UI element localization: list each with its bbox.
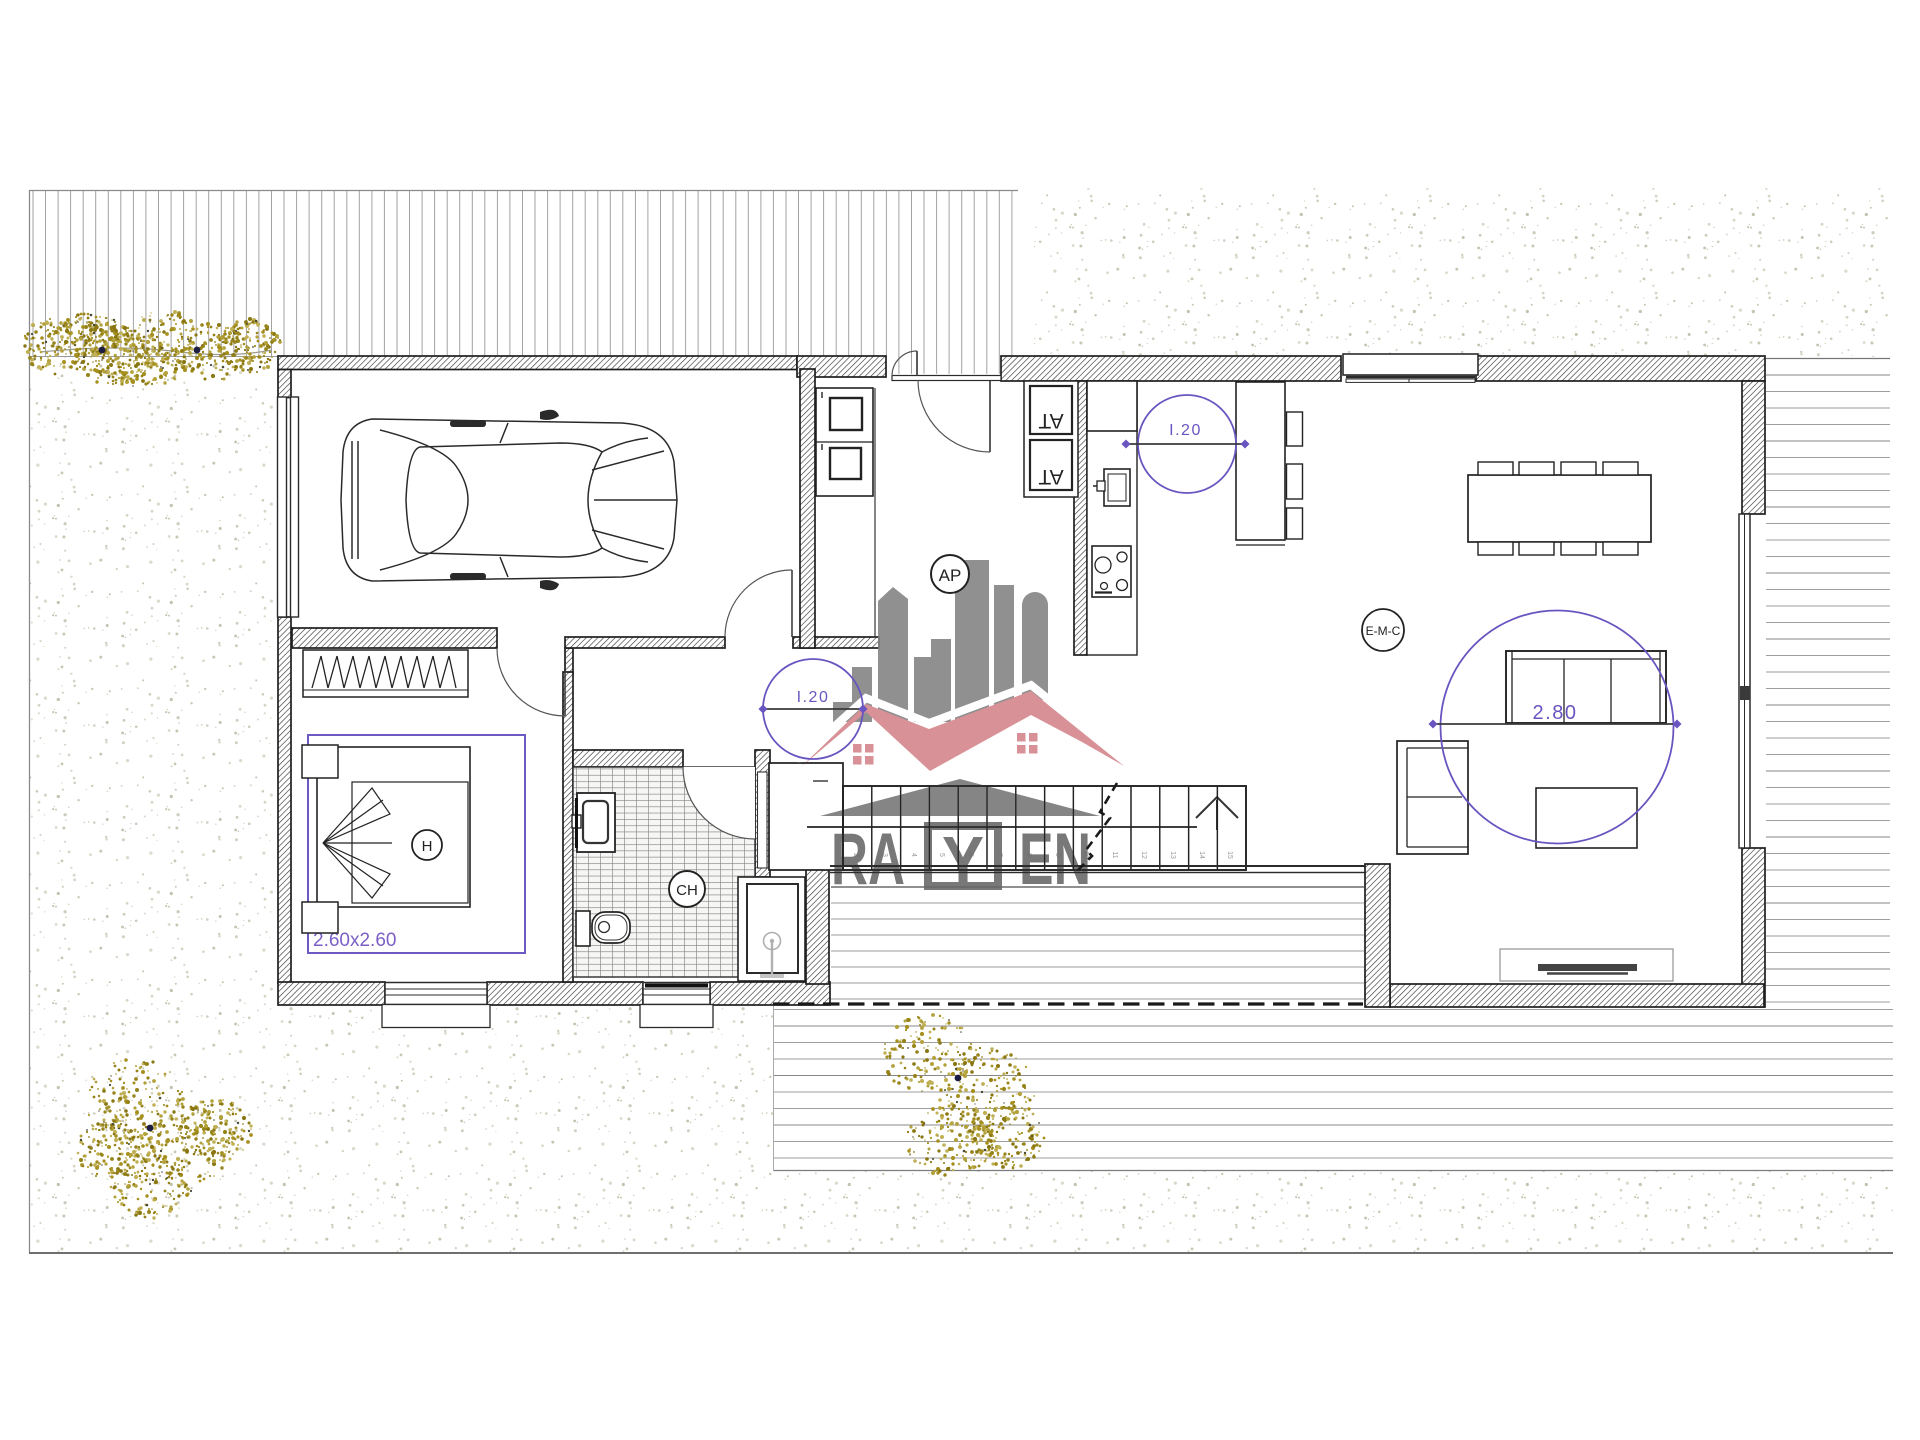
svg-text:AT: AT — [1038, 409, 1063, 432]
svg-text:I.20: I.20 — [1169, 422, 1202, 439]
svg-text:Y: Y — [942, 822, 984, 900]
svg-text:AT: AT — [1038, 465, 1063, 488]
svg-text:RA: RA — [831, 819, 905, 900]
svg-text:I.20: I.20 — [797, 689, 830, 706]
svg-text:CH: CH — [676, 882, 698, 899]
svg-text:11: 11 — [1111, 851, 1118, 858]
svg-text:H: H — [422, 838, 433, 855]
svg-text:14: 14 — [1198, 851, 1205, 859]
svg-text:EN: EN — [1019, 819, 1091, 900]
svg-text:E-M-C: E-M-C — [1366, 624, 1401, 638]
svg-text:2.80: 2.80 — [1533, 702, 1578, 724]
svg-text:15: 15 — [1226, 851, 1233, 859]
svg-text:12: 12 — [1140, 851, 1147, 859]
svg-text:AP: AP — [939, 566, 962, 585]
svg-text:13: 13 — [1169, 851, 1176, 859]
svg-text:4: 4 — [910, 853, 917, 857]
